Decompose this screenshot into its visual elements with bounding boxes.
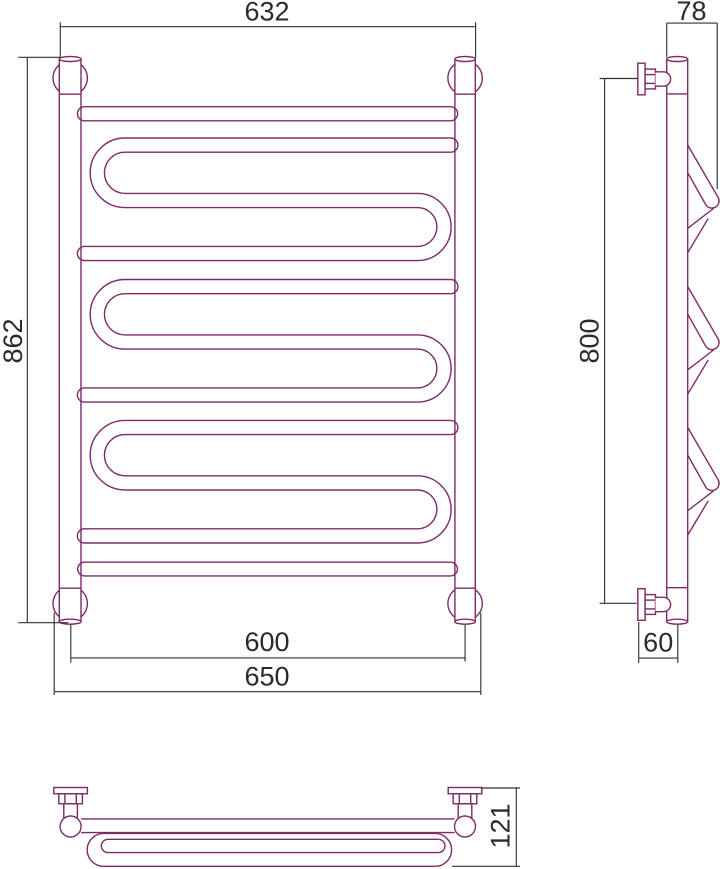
svg-text:78: 78: [676, 0, 706, 26]
svg-text:121: 121: [486, 803, 516, 848]
svg-text:60: 60: [643, 628, 673, 658]
svg-text:800: 800: [575, 318, 605, 363]
svg-text:632: 632: [244, 0, 289, 26]
svg-text:650: 650: [244, 662, 289, 692]
svg-text:862: 862: [0, 318, 28, 363]
svg-text:600: 600: [244, 627, 289, 657]
